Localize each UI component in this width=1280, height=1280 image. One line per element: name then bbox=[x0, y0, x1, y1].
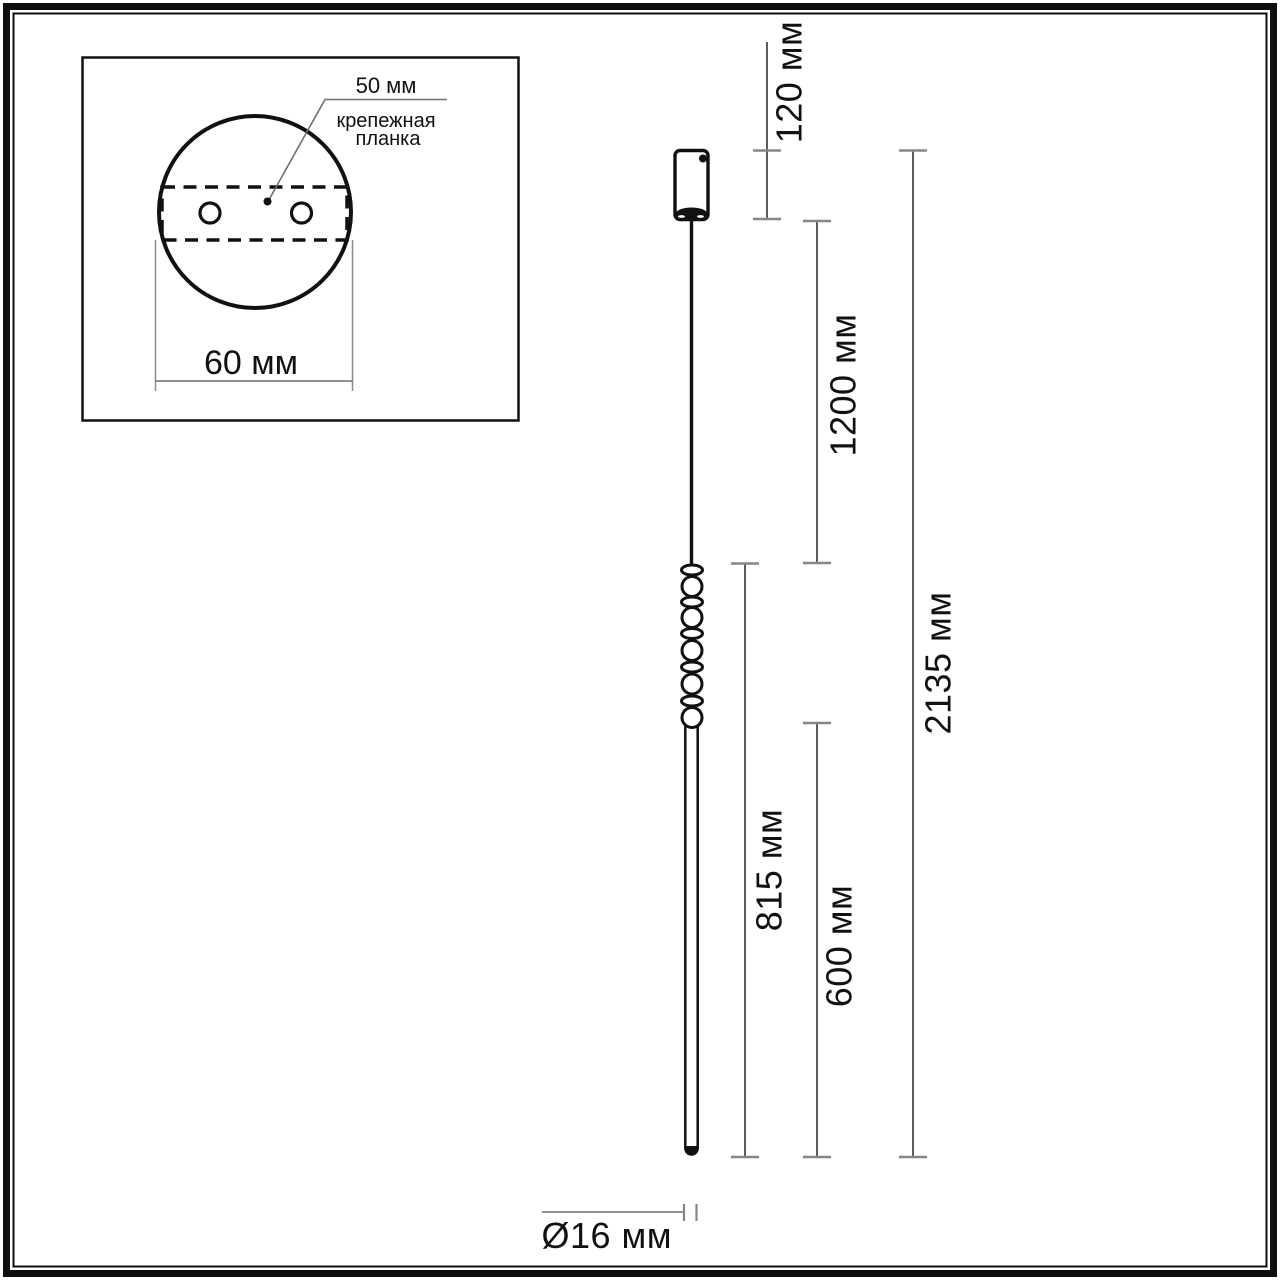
mounting-plate-dashed-rect bbox=[162, 187, 347, 240]
dim-cable-length: 1200 мм bbox=[803, 221, 864, 563]
outer-frame-border bbox=[7, 7, 1274, 1274]
bead-large bbox=[682, 674, 702, 694]
hole-spacing-label: 50 мм bbox=[356, 73, 417, 98]
inner-frame-border bbox=[14, 14, 1267, 1267]
bead-small bbox=[682, 696, 703, 706]
screw-hole-right bbox=[292, 203, 312, 223]
cup-highlight-right bbox=[697, 215, 704, 218]
page-frame bbox=[7, 7, 1274, 1274]
dim-overall-height: 2135 мм bbox=[899, 151, 959, 1158]
pendant-lamp bbox=[675, 151, 708, 1155]
set-screw-dot bbox=[699, 155, 707, 163]
dim-tube-diameter-label: Ø16 мм bbox=[541, 1215, 672, 1256]
dim-canopy-height-label: 120 мм bbox=[769, 21, 810, 144]
bead-small bbox=[682, 565, 703, 575]
canopy-inset-panel: 50 мм крепежная планка 60 мм bbox=[83, 58, 519, 421]
dim-tube-length: 600 мм bbox=[803, 723, 860, 1157]
dim-cable-length-label: 1200 мм bbox=[823, 313, 864, 456]
plate-label-line2: планка bbox=[356, 128, 422, 150]
screw-hole-left bbox=[200, 203, 220, 223]
dim-stem-with-beads-label: 815 мм bbox=[749, 809, 790, 932]
dim-tube-diameter: Ø16 мм bbox=[541, 1204, 696, 1256]
dim-overall-height-label: 2135 мм bbox=[918, 591, 959, 734]
canopy-circle bbox=[159, 116, 351, 308]
dim-stem-with-beads: 815 мм bbox=[731, 564, 790, 1158]
drawing-page: 50 мм крепежная планка 60 мм bbox=[0, 0, 1280, 1280]
dimension-annotations: 120 мм 1200 мм 2135 мм 815 мм bbox=[541, 21, 958, 1256]
bead-large bbox=[682, 641, 702, 661]
bead-large bbox=[682, 608, 702, 628]
bead-small bbox=[682, 597, 703, 607]
cup-highlight-left bbox=[678, 215, 685, 218]
leader-dot bbox=[264, 198, 272, 206]
dim-canopy-height: 120 мм bbox=[753, 21, 810, 219]
bead-large bbox=[682, 708, 702, 728]
bead-small bbox=[682, 662, 703, 672]
canopy-width-label: 60 мм bbox=[204, 344, 298, 382]
bead-large bbox=[682, 577, 702, 597]
technical-drawing: 50 мм крепежная планка 60 мм bbox=[0, 0, 1280, 1280]
cup-bottom-cap bbox=[676, 208, 708, 221]
bead-small bbox=[682, 629, 703, 639]
bead-stack bbox=[682, 565, 703, 728]
light-tube bbox=[685, 726, 697, 1155]
dim-tube-length-label: 600 мм bbox=[819, 885, 860, 1008]
